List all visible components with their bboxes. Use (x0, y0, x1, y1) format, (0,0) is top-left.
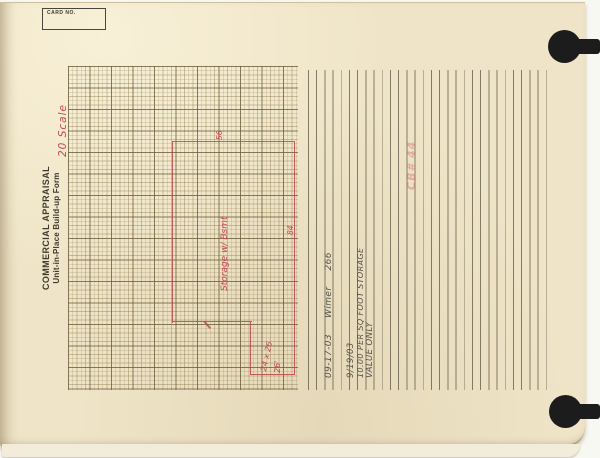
hole-punch-top-stem (572, 39, 600, 54)
pencil-note-line1: 09-17-03Wimer266 (323, 252, 335, 378)
card-number-label: CARD NO. (43, 9, 105, 16)
pencil-date: 09-17-03 (324, 334, 334, 378)
form-title: COMMERCIAL APPRAISAL Unit-in-Place Build… (41, 153, 62, 303)
card-bottom-edge (2, 444, 580, 457)
form-title-line1: COMMERCIAL APPRAISAL (41, 153, 52, 303)
dimension-scribble-2: 26' (272, 361, 284, 373)
dimension-label-top: 56 (214, 130, 226, 140)
pencil-name: Wimer (324, 287, 334, 318)
form-title-line2: Unit-in-Place Build-up Form (52, 153, 62, 303)
dimension-label-right: 84 (285, 225, 297, 235)
pencil-note-line4: VALUE ONLY (364, 322, 376, 378)
card-number-box: CARD NO. (42, 8, 106, 30)
pencil-number: 266 (324, 252, 334, 270)
building-label: Storage w/ Bsmt (219, 217, 231, 292)
faint-red-stamp: CB# 44 (405, 141, 419, 190)
hole-punch-bottom-stem (572, 404, 600, 419)
building-sketch-bottom-edge (172, 321, 252, 323)
building-sketch-outline (172, 141, 295, 323)
ruled-note-area (308, 70, 547, 390)
